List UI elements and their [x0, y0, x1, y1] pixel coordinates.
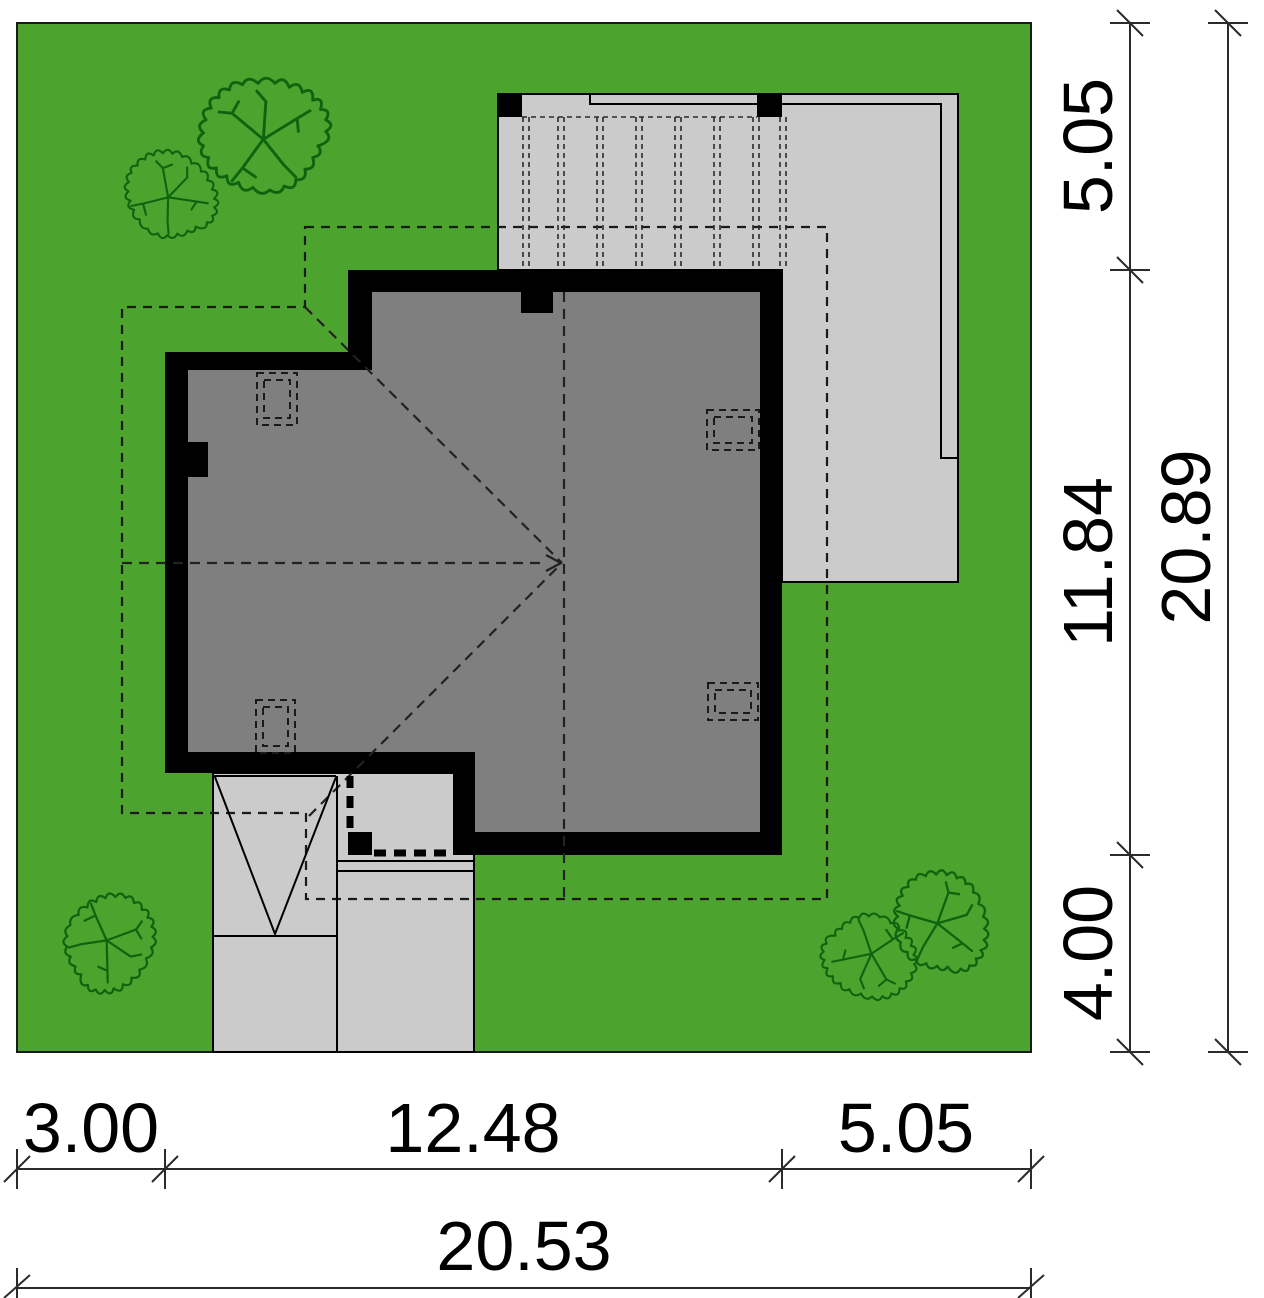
dim-label-total: 20.89 — [1147, 449, 1225, 624]
dim-label: 5.05 — [1049, 78, 1127, 214]
dim-label: 12.48 — [385, 1089, 560, 1167]
wall-pilaster-left — [188, 442, 208, 477]
site-plan-canvas: 5.05 11.84 4.00 20.89 3.00 12.48 5.05 20… — [0, 0, 1264, 1298]
chimney-block-top — [521, 292, 553, 313]
dim-label-total: 20.53 — [436, 1207, 611, 1285]
dim-label: 4.00 — [1049, 885, 1127, 1021]
driveway — [213, 773, 474, 1052]
dim-label: 5.05 — [838, 1089, 974, 1167]
pergola-post-right — [757, 94, 782, 117]
porch-post — [348, 832, 372, 855]
pergola-post-left — [497, 94, 522, 117]
site-plan: 5.05 11.84 4.00 20.89 3.00 12.48 5.05 20… — [0, 0, 1264, 1298]
dim-label: 3.00 — [23, 1089, 159, 1167]
dim-label: 11.84 — [1049, 477, 1127, 647]
